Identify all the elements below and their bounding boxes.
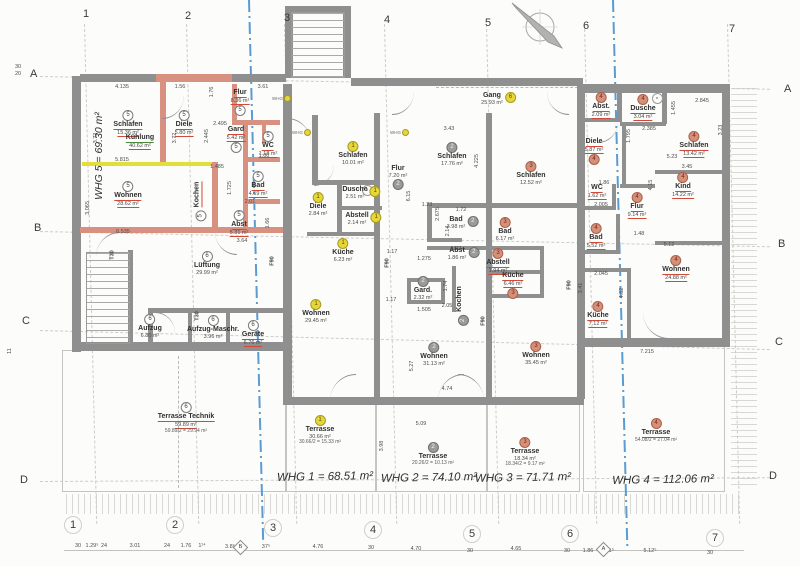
dimension-label: 1.485: [210, 164, 224, 170]
room-area: 2.32 m²: [414, 295, 433, 301]
room-name: Lüftung: [194, 262, 220, 270]
grid-column-label: 1: [64, 516, 82, 534]
dimension-label: 1.74: [443, 281, 449, 292]
dimension-label: 4.15: [648, 180, 654, 191]
room-name: Küche: [587, 312, 608, 321]
room-name: Abstell: [345, 212, 368, 220]
apartment-badge: 3: [530, 341, 541, 352]
apartment-badge: 4: [689, 131, 700, 142]
fire-rating-label: F90: [481, 316, 487, 325]
room-label: 3Wohnen35.45 m²: [522, 341, 549, 366]
room-area: 6.80 m²: [141, 333, 160, 339]
room-label: Flur8.36 m²5: [231, 89, 250, 116]
room-label: 2Terrasse20.26/2 = 10.13 m²: [412, 442, 454, 467]
fire-rating-label: T30: [110, 250, 116, 259]
grid-row-label: B: [34, 222, 41, 234]
room-area: 24.88 m²: [665, 275, 687, 282]
room-area: 14.22 m²: [672, 192, 694, 199]
room-label: 3Bad6.17 m²: [496, 217, 515, 242]
dimension-label: 1.48: [634, 231, 645, 237]
dimension-label: 2.14: [445, 226, 451, 237]
room-name: Wohnen: [522, 352, 549, 360]
room-area-half: 30.66/2 = 15.33 m²: [299, 440, 341, 446]
room-label: 2Gard.2.32 m²: [414, 276, 433, 301]
room-label: 1Terrasse30.66 m²30.66/2 = 15.33 m²: [299, 415, 341, 446]
wall: [583, 338, 723, 347]
room-name: Kochen: [456, 286, 464, 312]
room-label: 3Schlafen12.52 m²: [516, 161, 545, 186]
room-area-half: 20.26/2 = 10.13 m²: [412, 461, 454, 467]
apartment-badge: 4: [678, 172, 689, 183]
apartment-badge: 4: [670, 255, 681, 266]
fire-rating-label: F90: [567, 280, 573, 289]
apartment-badge: 3: [520, 437, 531, 448]
dimension-label: 5.27: [409, 361, 415, 372]
room-area: 4.59 m²: [249, 191, 268, 198]
wall: [374, 113, 380, 399]
apartment-badge: 5: [263, 131, 274, 142]
room-area: 6.23 m²: [334, 257, 353, 263]
room-area: 29.99 m²: [196, 270, 218, 276]
dimension-label: 1.795: [626, 129, 632, 143]
apartment-badge: 4: [596, 92, 607, 103]
dimension-label: 2.385: [642, 126, 656, 132]
dimension-label: 30: [75, 543, 81, 549]
dimension-label: 1.72: [456, 207, 467, 213]
apartment-badge: 5: [231, 142, 242, 153]
dimension-label: 3.065: [85, 201, 91, 215]
dimension-label: 4.82: [619, 288, 625, 299]
room-name: Wohnen: [114, 192, 141, 201]
apartment-badge: 2: [468, 247, 479, 258]
dimension-label: 3.61: [258, 84, 269, 90]
wall: [337, 206, 382, 210]
room-label: Abstell2.14 m²1: [345, 212, 368, 226]
dimension-label: 2.495: [213, 121, 227, 127]
room-name: Schlafen: [679, 142, 708, 151]
dimension-label: 1.23: [422, 202, 433, 208]
corridor-boundary: [436, 87, 583, 88]
apartment-summary: WHG 5 = 69.30 m²: [93, 112, 105, 200]
apartment-badge: 3: [526, 161, 537, 172]
room-name: Gard.: [414, 287, 432, 295]
room-label: 4Abst.2.09 m²: [592, 92, 611, 119]
dimension-label: 1.66: [265, 218, 271, 229]
room-label: 4Flur9.14 m²: [628, 192, 647, 219]
room-name: Abst.: [592, 103, 610, 112]
room-name: Diele: [176, 121, 193, 130]
room-name: Kind: [675, 183, 691, 192]
whg-marker: WHG: [390, 129, 409, 136]
gridline: [40, 231, 770, 248]
room-label: 4Schlafen13.42 m²: [679, 131, 708, 158]
apartment-badge: 2: [418, 276, 429, 287]
apartment-badge: 4: [637, 94, 648, 105]
grid-row-label: C: [775, 336, 783, 348]
room-name: Geräte: [242, 331, 264, 340]
dimension-label: 11: [7, 348, 13, 354]
apartment-badge: 1: [315, 415, 326, 426]
apartment-badge: 1: [313, 192, 324, 203]
room-area: 12.52 m²: [520, 180, 542, 186]
door-arc: [330, 374, 356, 401]
wall: [722, 84, 730, 347]
wall: [585, 250, 620, 254]
room-label: 4Wohnen24.88 m²: [662, 255, 689, 282]
section-marker: A: [596, 542, 612, 558]
room-label: Diele5.87 m²4: [585, 138, 604, 165]
apartment-badge: 3: [508, 288, 519, 299]
grid-row-label: C: [22, 315, 30, 327]
dimension-label: 4.135: [115, 84, 129, 90]
room-area: 1.62 m²: [588, 193, 607, 200]
room-area: 2.51 m²: [346, 194, 365, 200]
apartment-badge: 2: [447, 142, 458, 153]
room-name: Kühlung: [126, 134, 154, 143]
dimension-label: 1.17: [386, 297, 397, 303]
wall: [662, 90, 667, 124]
room-label: 4Bad5.52 m²: [587, 223, 606, 250]
dimension-label: 1.56: [175, 84, 186, 90]
dimension-chain-line: [64, 550, 744, 551]
room-label: 2Schlafen17.76 m²: [437, 142, 466, 167]
dimension-label: 30: [15, 64, 21, 70]
whg-marker: WHG: [272, 95, 291, 102]
grid-column-label: 6: [583, 20, 589, 32]
room-label: Kühlung40.62 m²: [126, 134, 154, 150]
grid-row-label: A: [784, 83, 791, 95]
room-name: Schlafen: [113, 121, 142, 130]
apartment-badge: 6: [505, 92, 516, 103]
room-area: 29.45 m²: [305, 318, 327, 324]
room-area: 40.62 m²: [129, 143, 151, 150]
grid-column-label: 7: [729, 23, 735, 35]
dimension-label: 30: [707, 550, 713, 556]
dimension-label: 2.445: [204, 129, 210, 143]
wall: [577, 84, 585, 399]
room-area: 31.13 m²: [423, 361, 445, 367]
room-label: Kochen2: [456, 286, 464, 312]
apartment-badge: 5: [195, 210, 206, 221]
stair-treads: [86, 252, 130, 344]
dimension-label: 1.76: [209, 87, 215, 98]
room-label: Kochen5: [193, 182, 202, 208]
wall: [427, 238, 462, 242]
whg-marker: WHG: [292, 129, 311, 136]
dimension-label: 4.76: [313, 544, 324, 550]
dimension-label: 6.535: [116, 229, 130, 235]
dimension-label: 1¹⁴: [198, 543, 205, 549]
apartment-badge: 5: [235, 105, 246, 116]
grid-column-label: 6: [561, 525, 579, 543]
wall: [616, 214, 620, 254]
room-label: 6Aufzug6.80 m²: [138, 314, 162, 339]
room-label: 4Kind14.22 m²: [672, 172, 694, 199]
wall: [160, 82, 166, 162]
apartment-badge: 2: [428, 342, 439, 353]
apartment-summary: WHG 1 = 68.51 m²: [277, 470, 373, 484]
apartment-badge: 5: [234, 210, 245, 221]
room-label: 4Küche7.12 m²: [587, 301, 608, 328]
whg-marker-dot: [402, 129, 409, 136]
room-area-half: 18.34/2 = 9.17 m²: [505, 462, 544, 468]
room-label: 2Wohnen31.13 m²: [420, 342, 447, 367]
grid-column-label: 2: [185, 10, 191, 22]
dimension-label: 2.045: [594, 271, 608, 277]
grid-row-label: B: [778, 238, 785, 250]
apartment-badge: 2: [428, 442, 439, 453]
room-name: Terrasse: [306, 426, 335, 434]
dimension-label: 1.00: [259, 153, 270, 159]
dimension-label: 2.005: [594, 202, 608, 208]
room-name: Diele: [586, 138, 603, 147]
dimension-label: 1.725: [227, 181, 233, 195]
fire-rating-label: F90: [385, 258, 391, 267]
dimension-label: 5.815: [115, 157, 129, 163]
dimension-label: 7.215: [640, 349, 654, 355]
room-name: Schlafen: [516, 172, 545, 180]
room-name: Flur: [630, 203, 643, 212]
grid-row-label: A: [30, 68, 37, 80]
dimension-label: 4.225: [474, 154, 480, 168]
dimension-label: 3.64: [237, 238, 248, 244]
apartment-badge: 5: [122, 181, 133, 192]
room-area: 17.76 m²: [441, 161, 463, 167]
wall: [212, 162, 218, 230]
wall: [492, 203, 577, 208]
apartment-badge: 6: [201, 251, 212, 262]
room-area-half: 59.89/2 = 29.94 m²: [165, 429, 207, 435]
apartment-badge: 1: [348, 141, 359, 152]
wall: [351, 78, 583, 86]
dimension-label: 1.29⁵: [86, 543, 99, 549]
stair-treads: [291, 12, 345, 78]
dimension-label: 30: [564, 548, 570, 554]
dimension-label: 1.275: [417, 256, 431, 262]
room-label: 1Küche6.23 m²: [332, 238, 353, 263]
room-area: 28.62 m²: [117, 201, 139, 208]
room-area: 5.31 m²: [230, 230, 249, 237]
apartment-badge: 6: [208, 315, 219, 326]
apartment-badge: 5: [179, 110, 190, 121]
dimension-label: 1.86: [583, 548, 594, 554]
grid-column-label: 3: [284, 12, 290, 24]
wall: [148, 308, 285, 313]
fire-rating-label: F90: [270, 256, 276, 265]
dimension-label: 30: [368, 545, 374, 551]
room-label: 6Terrasse Technik59.89 m²59.89/2 = 29.94…: [158, 402, 215, 435]
dimension-label: 3.23: [718, 125, 724, 136]
room-label: Gang25.93 m²6: [481, 92, 503, 106]
room-area: 13.42 m²: [683, 151, 705, 158]
grid-column-label: 3: [264, 519, 282, 537]
room-name: Dusche: [630, 105, 655, 114]
north-arrow-icon: [502, 0, 574, 52]
grid-column-label: 5: [485, 17, 491, 29]
dimension-label: 24: [164, 543, 170, 549]
whg-marker-dot: [284, 95, 291, 102]
apartment-badge: 4: [632, 192, 643, 203]
room-name: Gang: [483, 92, 501, 100]
room-name: Wohnen: [662, 266, 689, 275]
room-label: 1Diele2.84 m²: [309, 192, 328, 217]
grid-column-label: 2: [166, 516, 184, 534]
apartment-badge: 3: [493, 248, 504, 259]
room-name: Kochen: [193, 182, 202, 208]
grid-column-label: 7: [706, 529, 724, 547]
dimension-label: 6.15: [406, 191, 412, 202]
room-name: Terrasse Technik: [158, 413, 215, 422]
room-area: 3.96 m²: [204, 334, 223, 340]
apartment-badge: 6: [180, 402, 191, 413]
room-label: 5Bad4.59 m²: [249, 171, 268, 198]
room-label: WC1.62 m²: [588, 184, 607, 200]
dimension-label: 5.12⁵: [644, 548, 657, 554]
dimension-label: 2.05: [442, 303, 453, 309]
apartment-badge: 4: [589, 154, 600, 165]
dimension-label: 2.675: [435, 207, 441, 221]
room-area: 5.87 m²: [585, 147, 604, 154]
wall: [156, 74, 232, 82]
dimension-label: 3.01: [130, 543, 141, 549]
room-label: Gard5.42 m²5: [227, 126, 246, 153]
room-area: 6.17 m²: [496, 236, 515, 242]
whg-marker-text: WHG: [390, 130, 401, 135]
room-name: Küche: [502, 272, 523, 281]
hatch: [66, 494, 742, 514]
room-name: Dusche: [342, 186, 367, 194]
dimension-label: 2.845: [695, 98, 709, 104]
room-area: 10.01 m²: [342, 160, 364, 166]
room-area: 6.76 m²: [244, 340, 263, 347]
wall: [540, 246, 544, 298]
grid-column-label: 4: [364, 521, 382, 539]
whg-marker-text: WHG: [292, 130, 303, 135]
door-arc: [547, 92, 569, 115]
apartment-summary: WHG 4 = 112.06 m²: [612, 473, 714, 487]
apartment-badge: 3: [500, 217, 511, 228]
apartment-badge: 5: [253, 171, 264, 182]
room-area-half: 54.08/2 = 27.04 m²: [635, 438, 677, 444]
grid-column-label: 5: [463, 525, 481, 543]
dimension-label: 5.23: [667, 154, 678, 160]
dimension-label: 4.74: [442, 386, 453, 392]
dimension-label: 1.17: [387, 249, 398, 255]
room-label: Dusche2.51 m²1: [342, 186, 367, 200]
dimension-label: 3.43: [444, 126, 455, 132]
room-name: Aufzug: [138, 325, 162, 333]
wall: [627, 270, 631, 338]
door-arc: [96, 232, 120, 257]
dimension-label: 4.65: [511, 546, 522, 552]
door-arc: [643, 312, 669, 339]
dimension-label: 24: [101, 543, 107, 549]
room-name: Terrasse: [511, 448, 540, 456]
dimension-label: 4.70: [411, 546, 422, 552]
apartment-badge: 5: [123, 110, 134, 121]
apartment-badge: 6: [145, 314, 156, 325]
wall: [232, 120, 280, 125]
room-name: Aufzug-Maschr.: [187, 326, 239, 334]
room-area: 9.14 m²: [628, 212, 647, 219]
dimension-label: 1.72: [451, 246, 462, 252]
room-area: 2.84 m²: [309, 211, 328, 217]
room-area: 3.04 m²: [634, 114, 653, 121]
dimension-label: 1.455: [671, 101, 677, 115]
apartment-badge: 1: [310, 299, 321, 310]
apartment-badge: 2: [393, 179, 404, 190]
room-label: 4Terrasse54.08/2 = 27.04 m²: [635, 418, 677, 444]
wall: [307, 232, 380, 236]
grid-row-label: D: [769, 470, 777, 482]
room-area: 7.12 m²: [589, 321, 608, 328]
dimension-label: 2.01: [245, 199, 256, 205]
room-label: 1Wohnen29.45 m²: [302, 299, 329, 324]
dimension-label: 5.12: [664, 242, 675, 248]
apartment-summary: WHG 3 = 71.71 m²: [475, 471, 571, 485]
section-marker: B: [233, 540, 249, 556]
room-area: 1.86 m²: [448, 255, 467, 261]
dimension-label: 1.505: [417, 307, 431, 313]
room-name: Flur: [233, 89, 246, 98]
apartment-badge: 6: [248, 320, 259, 331]
apartment-badge: 4: [593, 301, 604, 312]
room-area: 2.14 m²: [348, 220, 367, 226]
room-label: Flur7.20 m²2: [389, 165, 408, 190]
room-name: Gard: [228, 126, 244, 135]
grid-row-label: D: [20, 474, 28, 486]
dimension-label: 3.72: [172, 133, 178, 144]
dimension-label: 30: [467, 548, 473, 554]
dimension-label: 20: [15, 71, 21, 77]
grid-column-label: 4: [384, 14, 390, 26]
room-name: Bad: [449, 216, 462, 224]
room-name: Bad: [589, 234, 602, 243]
apartment-badge: 1: [338, 238, 349, 249]
room-area: 25.93 m²: [481, 100, 503, 106]
whg-marker-text: WHG: [272, 96, 283, 101]
room-name: Küche: [332, 249, 353, 257]
apartment-badge: 4: [591, 223, 602, 234]
wall: [283, 397, 584, 405]
wall: [585, 268, 631, 272]
room-name: Schlafen: [437, 153, 466, 161]
wall: [72, 76, 81, 352]
room-area: 6.46 m²: [504, 281, 523, 288]
room-name: Bad: [498, 228, 511, 236]
room-name: Wohnen: [302, 310, 329, 318]
room-label: 4Dusche3.04 m²: [630, 94, 655, 121]
apartment-badge: 1: [371, 212, 382, 223]
room-area: 5.42 m²: [227, 135, 246, 142]
section-marker-letter: A: [599, 545, 608, 554]
wall: [427, 203, 432, 240]
dimension-label: 3.41: [578, 283, 584, 294]
dimension-label: 3.98: [379, 441, 385, 452]
dimension-label: 5.09: [416, 421, 427, 427]
fire-rating-label: T30: [195, 311, 201, 320]
door-arc: [392, 92, 414, 115]
whg-marker-dot: [304, 129, 311, 136]
grid-column-label: 1: [83, 8, 89, 20]
room-label: 5Wohnen28.62 m²: [114, 181, 141, 208]
room-label: 6Lüftung29.99 m²: [194, 251, 220, 276]
room-area: 8.36 m²: [231, 98, 250, 105]
apartment-badge: 2: [458, 315, 469, 326]
door-arc: [458, 374, 484, 401]
apartment-summary: WHG 2 = 74.10 m²: [381, 471, 477, 485]
room-area: 2.09 m²: [592, 112, 611, 119]
